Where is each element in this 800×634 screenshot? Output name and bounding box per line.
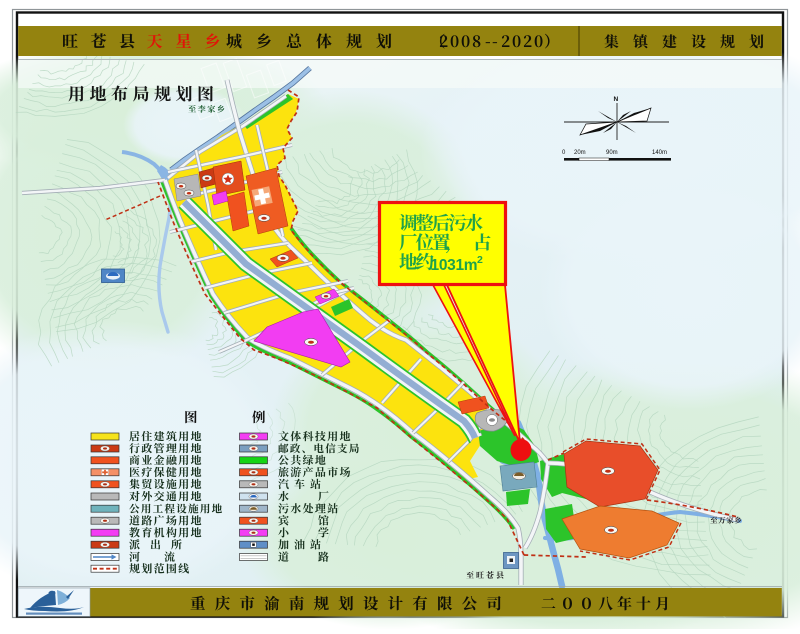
svg-text:1031m: 1031m xyxy=(431,257,478,274)
svg-text:2: 2 xyxy=(477,254,483,266)
svg-text:20m: 20m xyxy=(574,150,586,156)
svg-text:90m: 90m xyxy=(606,150,618,156)
svg-text:N: N xyxy=(614,96,619,103)
svg-text:140m: 140m xyxy=(652,150,667,156)
